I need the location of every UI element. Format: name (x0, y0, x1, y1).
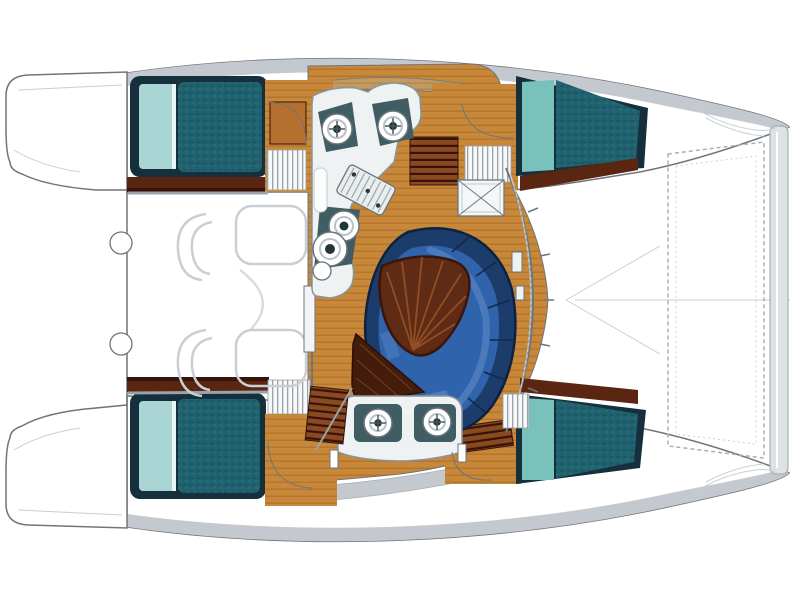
pillow-gap (172, 401, 176, 491)
cockpit-seat-outline (192, 222, 212, 274)
door-post (458, 444, 466, 462)
door-post (330, 450, 338, 468)
fwd-louver (503, 394, 529, 428)
port-companionway-steps (410, 137, 458, 185)
aft-sink (364, 409, 392, 437)
forward-crossbeam (770, 126, 788, 474)
port-cabin-door (270, 102, 306, 144)
cockpit-aft-edge (110, 192, 132, 405)
galley-sink (322, 114, 352, 144)
stbd-aft-berth-pillow (139, 401, 175, 491)
transom-cleat-lower (110, 333, 132, 355)
port-aft-steps (267, 150, 306, 190)
port-fwd-steps-louver (465, 146, 511, 182)
cockpit-shadow (240, 270, 263, 330)
aft-sink (423, 408, 451, 436)
cockpit-bench (236, 206, 306, 264)
small-basin (313, 262, 331, 280)
galley-shelf (314, 168, 327, 212)
cockpit-rail-bottom (128, 392, 268, 393)
stove-burner (313, 232, 347, 266)
port-aft-berth-pillow (139, 84, 175, 169)
aft-cockpit (178, 206, 306, 396)
stbd-saloon-stairs (305, 386, 348, 444)
windshield-fitting (516, 286, 524, 300)
catamaran-floorplan (0, 0, 800, 600)
wood-trim-shadow (127, 377, 269, 381)
transom-cleat-upper (110, 232, 132, 254)
galley-sink (378, 111, 408, 141)
sliding-door-panel (304, 286, 315, 352)
pillow-gap (172, 84, 176, 169)
mattress-texture (178, 82, 262, 172)
floorplan-drawing (0, 0, 800, 600)
deck-hatch (458, 180, 504, 216)
mattress-texture (178, 399, 260, 493)
wood-trim-shadow (127, 188, 269, 192)
windshield-fitting (512, 252, 522, 272)
port-fwd-berth-pillow (522, 80, 554, 172)
starboard-transom (6, 405, 127, 528)
